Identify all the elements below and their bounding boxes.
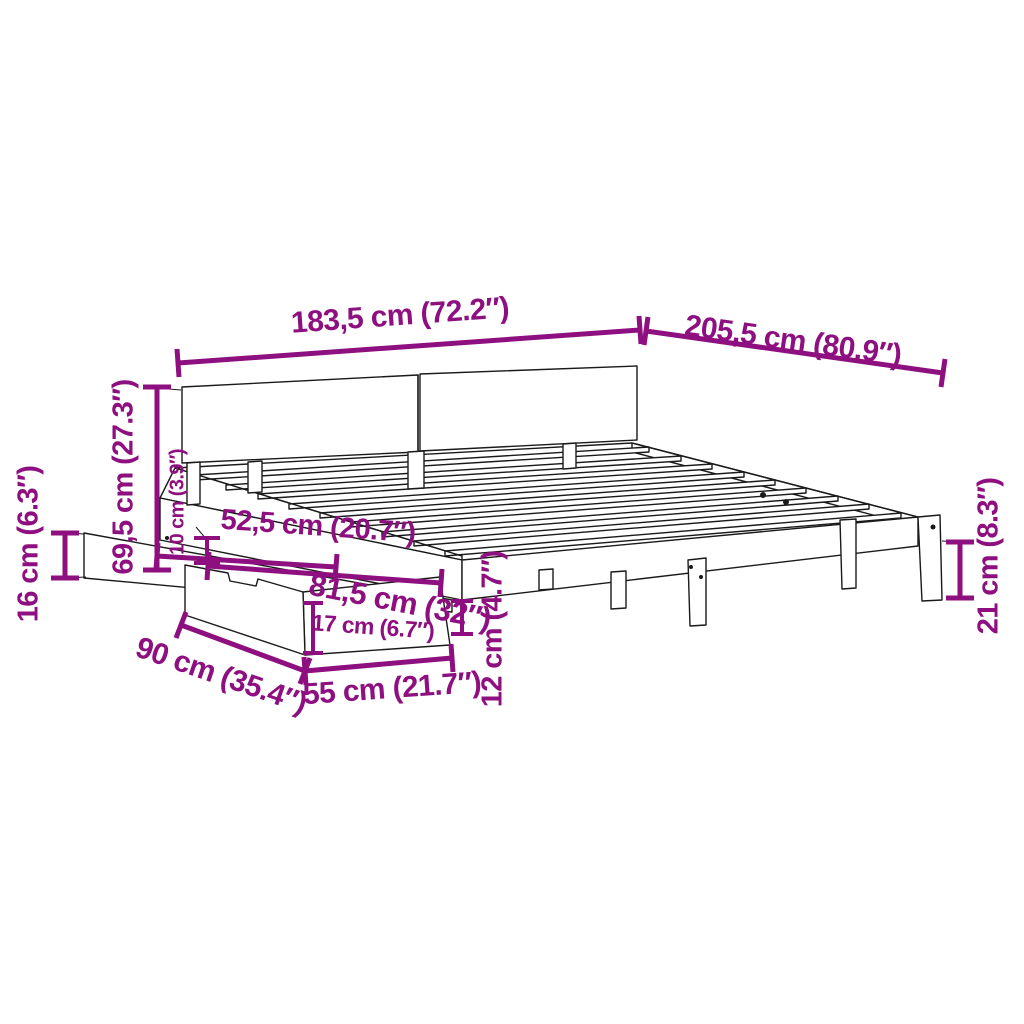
diagram-canvas: 183,5 cm (72.2″) 205,5 cm (80.9″) 69,5 c… [0, 0, 1024, 1024]
dimension-label-rail-height: 12 cm (4.7″) [477, 551, 510, 708]
dimension-label-rail-thickness: 10 cm (3.9″) [167, 449, 190, 555]
dim-line-leg-height [946, 542, 974, 598]
bed-frame-line-art [65, 366, 959, 655]
dim-line-drawer-side-height [51, 533, 79, 578]
dimension-label-drawer-side-height: 16 cm (6.3″) [13, 466, 46, 623]
bed-diagram-drawing [0, 0, 1024, 1024]
dimension-label-leg-height: 21 cm (8.3″) [973, 478, 1006, 635]
dimension-label-headboard-height: 69,5 cm (27.3″) [108, 379, 141, 574]
